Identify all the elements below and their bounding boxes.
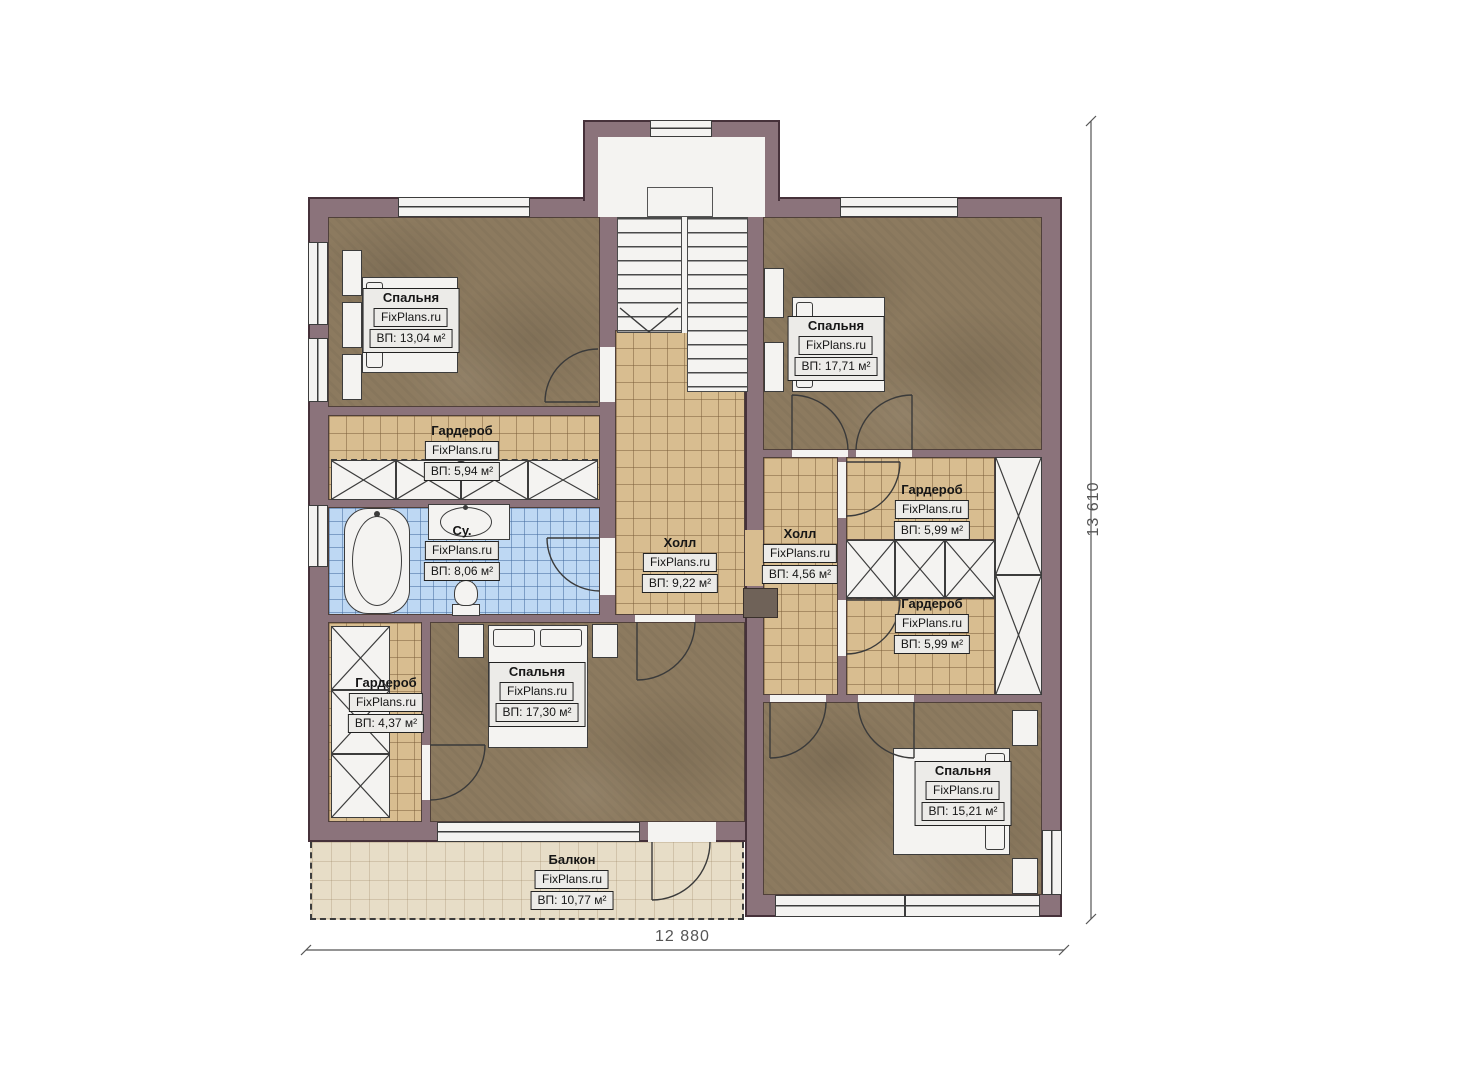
room-title: Спальня [808, 319, 864, 334]
nightstand [764, 342, 784, 392]
room-label-bedroom-top-left: Спальня FixPlans.ru ВП: 13,04 м² [363, 288, 460, 353]
balcony-slab [310, 842, 744, 920]
door-opening-bedroom-top-right-a [792, 450, 848, 457]
door-opening-wardrobe-left [422, 745, 430, 800]
watermark-fixplans: FixPlans.ru [895, 500, 969, 519]
room-area: ВП: 9,22 м² [642, 574, 718, 593]
door-opening-bedroom-top-right-b [856, 450, 912, 457]
stairs-flight-right [687, 217, 748, 392]
watermark-fixplans: FixPlans.ru [349, 693, 423, 712]
window-right-wall [1042, 830, 1062, 895]
watermark-fixplans: FixPlans.ru [500, 682, 574, 701]
room-label-wardrobe-right-lower: Гардероб FixPlans.ru ВП: 5,99 м² [894, 597, 970, 654]
room-title: Гардероб [431, 424, 492, 439]
dimension-height-label: 13 610 [1085, 478, 1103, 540]
watermark-fixplans: FixPlans.ru [926, 781, 1000, 800]
watermark-fixplans: FixPlans.ru [895, 614, 969, 633]
nightstand [1012, 710, 1038, 746]
wardrobe-unit [846, 540, 895, 598]
stair-landing-mark [647, 187, 713, 217]
room-label-bedroom-top-right: Спальня FixPlans.ru ВП: 17,71 м² [788, 316, 885, 381]
bath-faucet [374, 511, 380, 517]
room-title: Спальня [935, 764, 991, 779]
nightstand [592, 624, 618, 658]
wardrobe-unit [528, 460, 598, 500]
wardrobe-unit [331, 460, 396, 500]
window-bedroom-bottom-right-2 [905, 895, 1040, 917]
watermark-fixplans: FixPlans.ru [763, 544, 837, 563]
watermark-fixplans: FixPlans.ru [425, 441, 499, 460]
door-opening-bedroom-bottom-right-b [858, 695, 914, 702]
room-area: ВП: 5,94 м² [424, 462, 500, 481]
window-bedroom-bottom-right-1 [775, 895, 905, 917]
door-opening-wardrobe-right-upper [838, 462, 846, 518]
room-title: Спальня [383, 291, 439, 306]
nightstand [342, 250, 362, 296]
door-opening-bedroom-bottom-right-a [770, 695, 826, 702]
passage-between-halls [745, 530, 763, 586]
wardrobe-unit [945, 540, 995, 598]
room-label-bathroom: Су. FixPlans.ru ВП: 8,06 м² [424, 524, 500, 581]
dimension-tick [1059, 945, 1069, 955]
door-opening-bathroom [600, 538, 615, 595]
room-label-bedroom-bottom-center: Спальня FixPlans.ru ВП: 17,30 м² [489, 662, 586, 727]
stairs-flight-left [617, 217, 682, 333]
nightstand [342, 354, 362, 400]
balcony-door-opening [648, 822, 716, 842]
window-bedroom-top-left [398, 197, 530, 217]
nightstand [764, 268, 784, 318]
watermark-fixplans: FixPlans.ru [425, 541, 499, 560]
room-title: Гардероб [355, 676, 416, 691]
wardrobe-unit [995, 575, 1042, 695]
room-area: ВП: 10,77 м² [531, 891, 614, 910]
room-area: ВП: 4,56 м² [762, 565, 838, 584]
room-title: Холл [664, 536, 697, 551]
dimension-tick [301, 945, 311, 955]
window-bathroom [308, 505, 328, 567]
nightstand [1012, 858, 1038, 894]
wardrobe-unit [331, 754, 390, 818]
room-title: Гардероб [901, 483, 962, 498]
sink-faucet [463, 505, 468, 510]
watermark-fixplans: FixPlans.ru [799, 336, 873, 355]
room-title: Су. [452, 524, 471, 539]
bathtub-basin [352, 516, 402, 606]
dimension-tick [1086, 914, 1096, 924]
room-label-balcony: Балкон FixPlans.ru ВП: 10,77 м² [531, 853, 614, 910]
room-label-bedroom-bottom-right: Спальня FixPlans.ru ВП: 15,21 м² [915, 761, 1012, 826]
window-bedroom-top-right [840, 197, 958, 217]
dimension-tick [1086, 116, 1096, 126]
window-left-wall-upper [308, 242, 328, 325]
watermark-fixplans: FixPlans.ru [535, 870, 609, 889]
room-title: Балкон [549, 853, 596, 868]
window-left-wall-lower [308, 338, 328, 402]
room-title: Спальня [509, 665, 565, 680]
wardrobe-unit [895, 540, 945, 598]
room-label-hall-center: Холл FixPlans.ru ВП: 9,22 м² [642, 536, 718, 593]
room-area: ВП: 4,37 м² [348, 714, 424, 733]
room-title: Гардероб [901, 597, 962, 612]
room-title: Холл [784, 527, 817, 542]
room-label-wardrobe-right-upper: Гардероб FixPlans.ru ВП: 5,99 м² [894, 483, 970, 540]
room-label-wardrobe-top: Гардероб FixPlans.ru ВП: 5,94 м² [424, 424, 500, 481]
floor-plan-canvas: Спальня FixPlans.ru ВП: 13,04 м² Гардеро… [0, 0, 1473, 1080]
room-area: ВП: 17,71 м² [795, 357, 878, 376]
dimension-width-label: 12 880 [655, 928, 710, 946]
room-area: ВП: 17,30 м² [496, 703, 579, 722]
watermark-fixplans: FixPlans.ru [374, 308, 448, 327]
door-opening-bedroom-bottom-center [635, 615, 695, 622]
room-area: ВП: 5,99 м² [894, 521, 970, 540]
toilet-bowl [454, 580, 478, 606]
room-area: ВП: 8,06 м² [424, 562, 500, 581]
watermark-fixplans: FixPlans.ru [643, 553, 717, 572]
room-area: ВП: 13,04 м² [370, 329, 453, 348]
window-bedroom-bottom-center [437, 822, 640, 842]
nightstand [342, 302, 362, 348]
nightstand [458, 624, 484, 658]
pillow [493, 629, 535, 647]
vent-shaft [743, 588, 778, 618]
door-opening-bedroom-top-left [600, 347, 615, 402]
door-opening-wardrobe-right-lower [838, 600, 846, 656]
room-label-wardrobe-left: Гардероб FixPlans.ru ВП: 4,37 м² [348, 676, 424, 733]
room-label-hall-right: Холл FixPlans.ru ВП: 4,56 м² [762, 527, 838, 584]
room-area: ВП: 15,21 м² [922, 802, 1005, 821]
pillow [540, 629, 582, 647]
window-stair-tower [650, 120, 712, 137]
room-area: ВП: 5,99 м² [894, 635, 970, 654]
wardrobe-unit [995, 457, 1042, 575]
